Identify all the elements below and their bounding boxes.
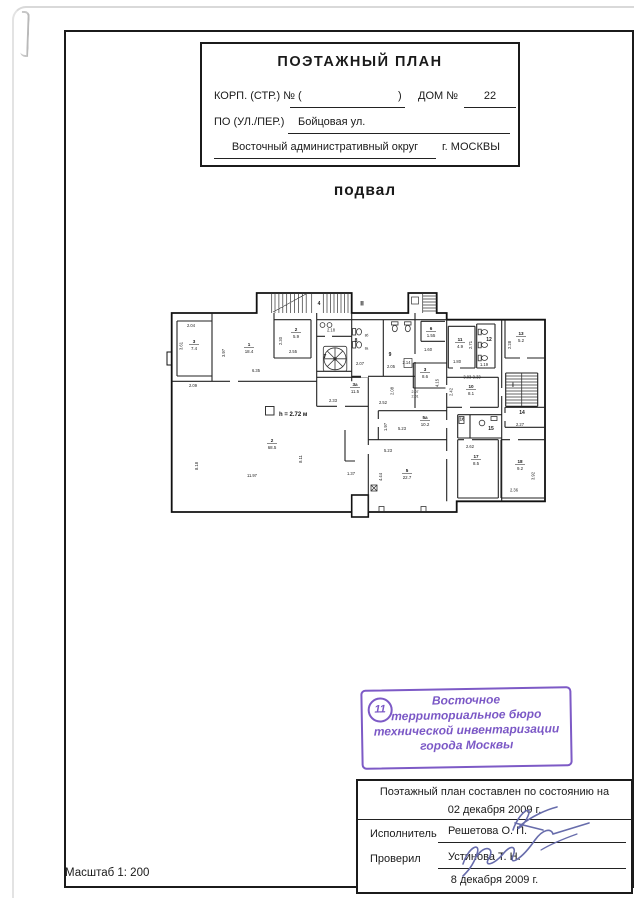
dim-label: 15 xyxy=(488,426,494,432)
checker-label: Проверил xyxy=(370,853,421,865)
outer-walls xyxy=(167,293,545,517)
room-number: 11 xyxy=(458,337,463,342)
district-value: Восточный административный округ xyxy=(214,141,436,153)
dim-label: 2.71 xyxy=(468,340,473,349)
stairs xyxy=(272,293,538,406)
dim-label: 3.61 xyxy=(179,341,184,350)
room-area: 11.5 xyxy=(351,389,360,394)
dim-label: 2.07 xyxy=(356,361,365,366)
staple-mark xyxy=(20,11,30,57)
dim-label: 2.18 xyxy=(327,328,336,333)
dim-label: 4.15 xyxy=(435,378,440,387)
dim-label: 1.37 xyxy=(347,471,356,476)
dim-label: 5.23 xyxy=(398,426,407,431)
korp-label: КОРП. (СТР.) № xyxy=(214,90,295,102)
stamp-line-4: города Москвы xyxy=(363,736,570,754)
dim-label: 5.23 xyxy=(384,448,393,453)
height-note: h = 2.72 м xyxy=(279,412,308,418)
dim-label: 3.92 xyxy=(531,471,536,480)
room-number: 6 xyxy=(430,326,433,331)
dim-label: 8 xyxy=(355,338,358,344)
room-area: 68.5 xyxy=(268,445,277,450)
room-area: 18.4 xyxy=(245,349,254,354)
dim-label: 1.60 xyxy=(424,347,433,352)
dim-label: 2.05 xyxy=(387,364,396,369)
title-block: ПОЭТАЖНЫЙ ПЛАН КОРП. (СТР.) № ( ) ДОМ № … xyxy=(200,42,520,167)
korp-field xyxy=(290,90,405,108)
scanned-floor-plan-page: ПОЭТАЖНЫЙ ПЛАН КОРП. (СТР.) № ( ) ДОМ № … xyxy=(0,0,640,906)
room-number: 3а xyxy=(352,382,358,387)
document-title: ПОЭТАЖНЫЙ ПЛАН xyxy=(202,54,518,70)
dim-label: 8а xyxy=(365,347,369,351)
bti-stamp: 11 Восточное территориальное бюро технич… xyxy=(360,686,572,770)
dim-label: 1.80 xyxy=(453,359,462,364)
room-number: 5а xyxy=(422,415,428,420)
paren-close: ) xyxy=(398,90,402,102)
scale-label: Масштаб 1: 200 xyxy=(65,867,149,879)
dim-label: 2.07 xyxy=(412,390,419,394)
room-number: 17 xyxy=(473,454,479,459)
room-number: 3 xyxy=(424,367,427,372)
room-number: 3 xyxy=(193,339,196,344)
dim-label: 9 xyxy=(389,352,392,358)
dim-label: 6.35 xyxy=(252,368,261,373)
room-area: 4.9 xyxy=(457,344,464,349)
dom-value: 22 xyxy=(464,90,516,108)
room-area: 5.2 xyxy=(518,338,525,343)
room-area: 8.1 xyxy=(468,391,475,396)
dim-label: 2.08 xyxy=(390,386,395,395)
room-number: 2 xyxy=(295,327,298,332)
paren-open: ( xyxy=(298,90,302,102)
spiral-stair xyxy=(323,346,347,371)
dom-label: ДОМ № xyxy=(418,90,458,102)
dim-label: 2.09 xyxy=(189,383,198,388)
street-label: ПО (УЛ./ПЕР.) xyxy=(214,116,284,128)
dim-label: 2.04 xyxy=(187,323,196,328)
dim-label: 2.52 xyxy=(379,400,388,405)
floor-title: подвал xyxy=(165,182,565,200)
room-number: 18 xyxy=(517,459,523,464)
room-number: 1 xyxy=(248,342,251,347)
city-label: г. МОСКВЫ xyxy=(442,141,500,153)
dim-label: 2.30 xyxy=(278,336,283,345)
room-number: 13 xyxy=(518,331,524,336)
dim-label: 8.18 xyxy=(194,461,199,470)
dim-label: 8б xyxy=(365,334,369,338)
dim-label: 4 xyxy=(318,301,321,307)
dim-label: II xyxy=(360,301,364,308)
dim-label: 7 xyxy=(324,354,327,360)
dim-label: 2.27 xyxy=(516,422,525,427)
room-area: 5.9 xyxy=(293,334,300,339)
dim-label: 2.36 xyxy=(510,488,519,493)
dim-label: 11.97 xyxy=(247,473,258,478)
room-area: 8.6 xyxy=(422,374,429,379)
dim-label: 3.97 xyxy=(221,348,226,357)
floor-plan: h = 2.72 м 37.4118.425.961.55114.9135.23… xyxy=(165,288,565,523)
dim-label: 2.28 xyxy=(507,340,512,349)
floor-plan-drawing: h = 2.72 м 37.4118.425.961.55114.9135.23… xyxy=(165,288,565,523)
dim-label: 14 xyxy=(519,410,525,416)
room-area: 8.5 xyxy=(473,461,480,466)
room-area: 10.2 xyxy=(421,422,430,427)
room-area: 22.7 xyxy=(403,475,412,480)
street-value: Бойцовая ул. xyxy=(298,116,365,128)
dim-label: 3.03-3.33 xyxy=(463,375,481,380)
room-number: 2 xyxy=(271,438,274,443)
room-area: 1.55 xyxy=(427,333,436,338)
room-number: 5 xyxy=(406,468,409,473)
dim-label: 1.97 xyxy=(383,422,388,431)
dim-label: 2.14 xyxy=(403,360,412,365)
dim-label: 12 xyxy=(486,337,492,343)
signature-strokes xyxy=(455,792,630,887)
dim-label: 8.11 xyxy=(298,454,303,462)
room-area: 7.4 xyxy=(191,346,198,351)
executor-label: Исполнитель xyxy=(370,828,437,840)
dim-label: 4.44 xyxy=(378,472,383,481)
dim-label: 16 xyxy=(460,417,465,422)
dim-label: 2.33 xyxy=(329,398,338,403)
dim-label: 2.01 xyxy=(412,395,419,399)
dim-label: 2.42 xyxy=(449,387,454,396)
room-number: 10 xyxy=(468,384,474,389)
room-area: 9.2 xyxy=(517,466,524,471)
dim-label: 1.19 xyxy=(480,362,489,367)
dim-label: 2.55 xyxy=(289,349,298,354)
dim-label: 2.62 xyxy=(466,444,475,449)
